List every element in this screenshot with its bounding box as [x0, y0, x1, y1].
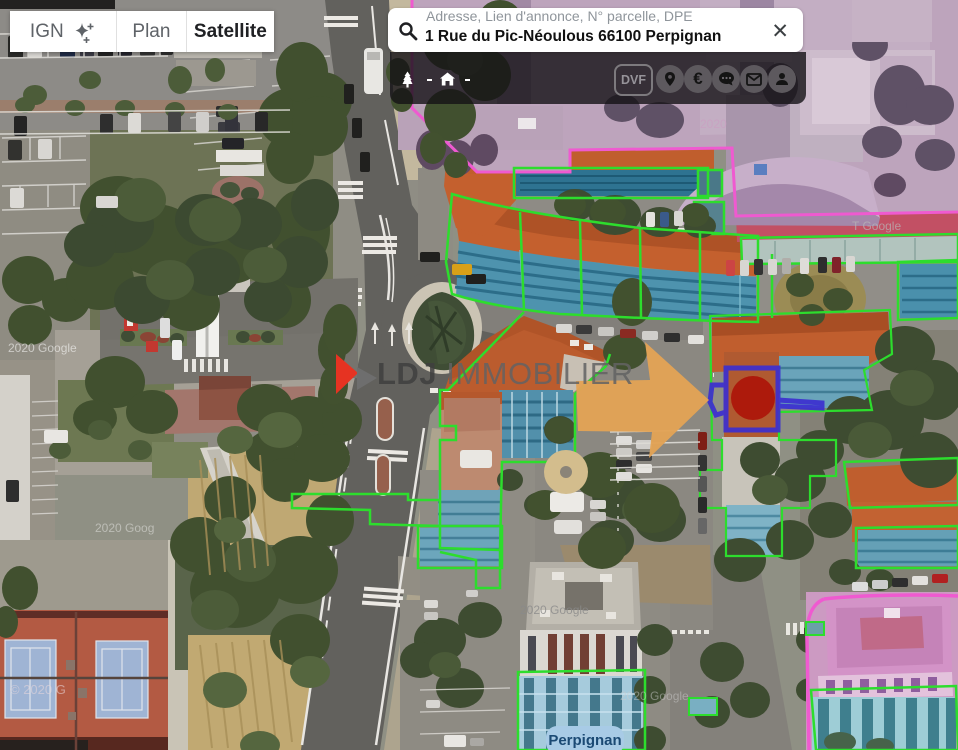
svg-text:2020 Google: 2020 Google [8, 341, 77, 355]
svg-text:2020 Google: 2020 Google [520, 603, 589, 617]
svg-text:T Google: T Google [852, 219, 901, 233]
svg-text:2020 Goog: 2020 Goog [95, 521, 154, 535]
svg-text:© 2020 G: © 2020 G [10, 682, 66, 697]
svg-text:2020 Google: 2020 Google [620, 689, 689, 703]
svg-text:2020: 2020 [700, 117, 727, 131]
